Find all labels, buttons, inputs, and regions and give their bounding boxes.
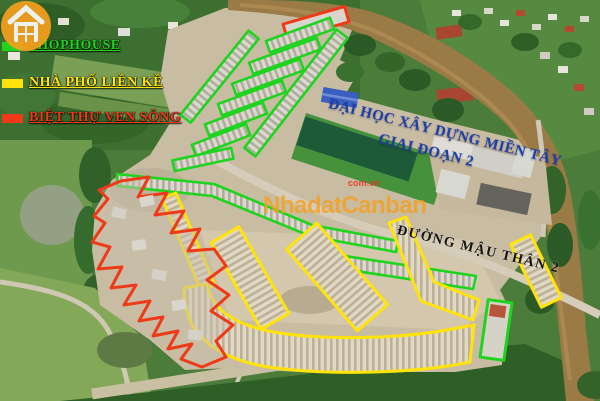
tree xyxy=(399,69,431,91)
tree xyxy=(336,62,364,82)
house-icon xyxy=(0,0,52,52)
legend-swatch-townhouse xyxy=(2,79,23,88)
tree xyxy=(511,33,539,51)
house xyxy=(584,108,594,115)
legend-label: NHÀ PHỐ LIỀN KỀ xyxy=(29,75,163,91)
legend-swatch-villa xyxy=(2,114,23,123)
house xyxy=(574,84,584,91)
house xyxy=(452,10,461,16)
tree xyxy=(432,98,464,122)
house xyxy=(558,66,568,73)
house xyxy=(548,14,557,20)
villa-building xyxy=(187,329,202,341)
watermark-domain: com.vn xyxy=(348,178,380,188)
watermark-name: NhadatCanban xyxy=(263,192,426,220)
house xyxy=(540,52,550,59)
legend-item-villa: BIỆT THỰ VEN SÔNG xyxy=(2,110,181,126)
villa-building xyxy=(131,239,146,251)
house xyxy=(484,8,493,14)
tree xyxy=(375,52,405,72)
legend-item-townhouse: NHÀ PHỐ LIỀN KỀ xyxy=(2,75,163,91)
aerial-site-plan: SHOPHOUSE NHÀ PHỐ LIỀN KỀ BIỆT THỰ VEN S… xyxy=(0,0,600,401)
house xyxy=(532,24,541,30)
house xyxy=(118,28,130,36)
tree xyxy=(558,42,582,58)
tree xyxy=(344,34,376,56)
marsh xyxy=(97,332,153,368)
house xyxy=(58,18,69,25)
house xyxy=(516,10,525,16)
house xyxy=(580,16,589,22)
red-roof xyxy=(489,304,507,318)
tree xyxy=(458,14,482,30)
house xyxy=(565,26,574,32)
legend-label: BIỆT THỰ VEN SÔNG xyxy=(29,110,181,126)
house xyxy=(500,20,509,26)
